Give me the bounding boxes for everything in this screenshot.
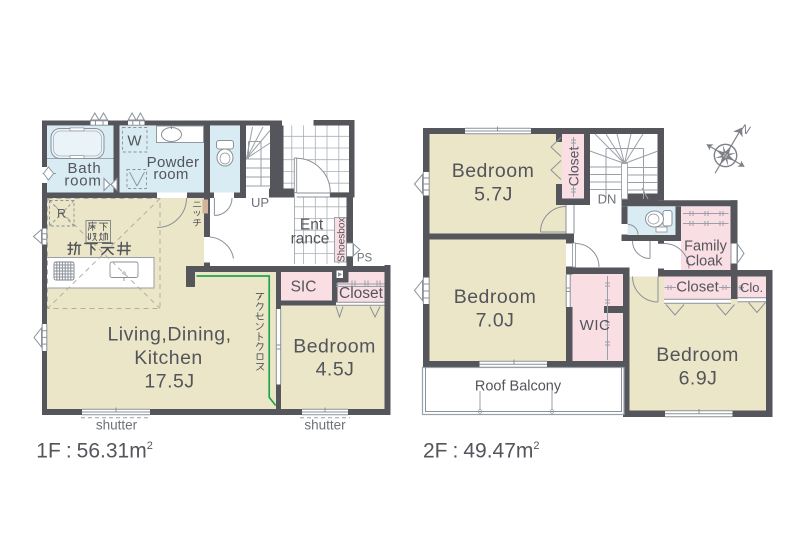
svg-text:UP: UP xyxy=(251,195,269,210)
svg-text:Bedroom: Bedroom xyxy=(454,286,537,308)
svg-text:5.7J: 5.7J xyxy=(474,184,513,206)
svg-text:shutter: shutter xyxy=(304,418,346,433)
svg-text:2F:49.47m2: 2F:49.47m2 xyxy=(423,440,540,463)
svg-text:shutter: shutter xyxy=(96,418,138,433)
svg-text:Family: Family xyxy=(684,239,727,255)
svg-text:rance: rance xyxy=(291,231,330,248)
svg-text:17.5J: 17.5J xyxy=(144,371,194,393)
svg-text:Closet: Closet xyxy=(339,285,384,302)
svg-text:7.0J: 7.0J xyxy=(476,310,515,332)
svg-text:Closet: Closet xyxy=(676,279,719,296)
svg-text:PS: PS xyxy=(357,253,373,265)
svg-text:Clo.: Clo. xyxy=(740,280,763,295)
svg-text:SIC: SIC xyxy=(291,279,317,296)
svg-text:Cloak: Cloak xyxy=(685,254,723,270)
svg-text:Shoesbox: Shoesbox xyxy=(336,218,347,262)
svg-text:Roof Balcony: Roof Balcony xyxy=(475,379,562,395)
svg-text:1F:56.31m2: 1F:56.31m2 xyxy=(36,440,153,463)
svg-text:Bedroom: Bedroom xyxy=(656,344,739,366)
svg-text:room: room xyxy=(153,166,188,183)
svg-text:R: R xyxy=(57,207,66,221)
svg-text:Living,Dining,: Living,Dining, xyxy=(107,324,231,346)
svg-text:Bedroom: Bedroom xyxy=(452,160,535,182)
svg-text:DN: DN xyxy=(598,192,617,207)
svg-text:Closet: Closet xyxy=(566,147,582,187)
svg-text:4.5J: 4.5J xyxy=(316,359,355,381)
svg-text:Bedroom: Bedroom xyxy=(293,336,376,358)
svg-text:6.9J: 6.9J xyxy=(679,368,718,390)
svg-text:W: W xyxy=(127,133,142,150)
svg-text:WIC: WIC xyxy=(580,317,611,334)
svg-text:room: room xyxy=(64,173,101,190)
svg-text:Kitchen: Kitchen xyxy=(134,347,203,369)
